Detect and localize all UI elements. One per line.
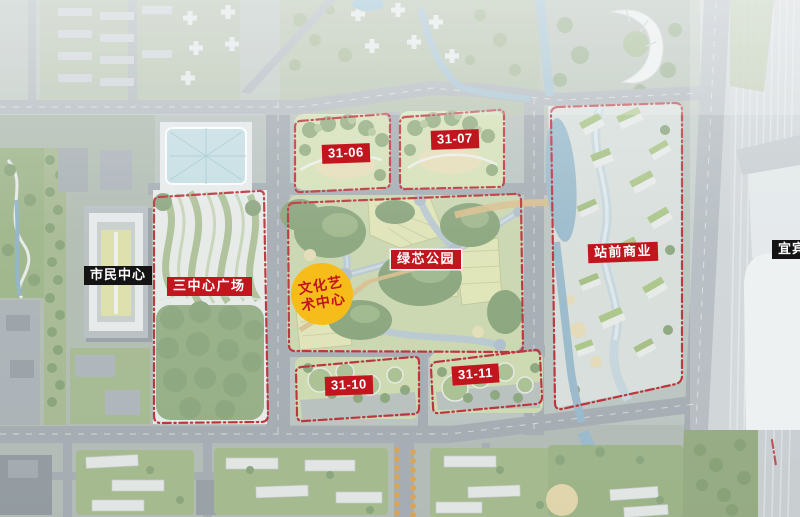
- zone-label-31-06: 31-06: [322, 143, 370, 164]
- zone-label-three-center-plaza: 三中心广场: [167, 277, 252, 296]
- zone-label-green-core-park: 绿芯公园: [391, 250, 461, 269]
- zone-label-31-07: 31-07: [431, 129, 479, 150]
- zone-label-station-front-commerce: 站前商业: [588, 242, 659, 264]
- zone-label-31-10: 31-10: [325, 375, 373, 396]
- zone-label-31-11: 31-11: [451, 363, 499, 385]
- masterplan-map: 市民中心 三中心广场 文化艺 术中心 绿芯公园 站前商业 31-06 31-07…: [0, 0, 800, 517]
- station-name-label: 宜宾: [772, 240, 800, 259]
- zone-label-citizens-center: 市民中心: [84, 266, 152, 285]
